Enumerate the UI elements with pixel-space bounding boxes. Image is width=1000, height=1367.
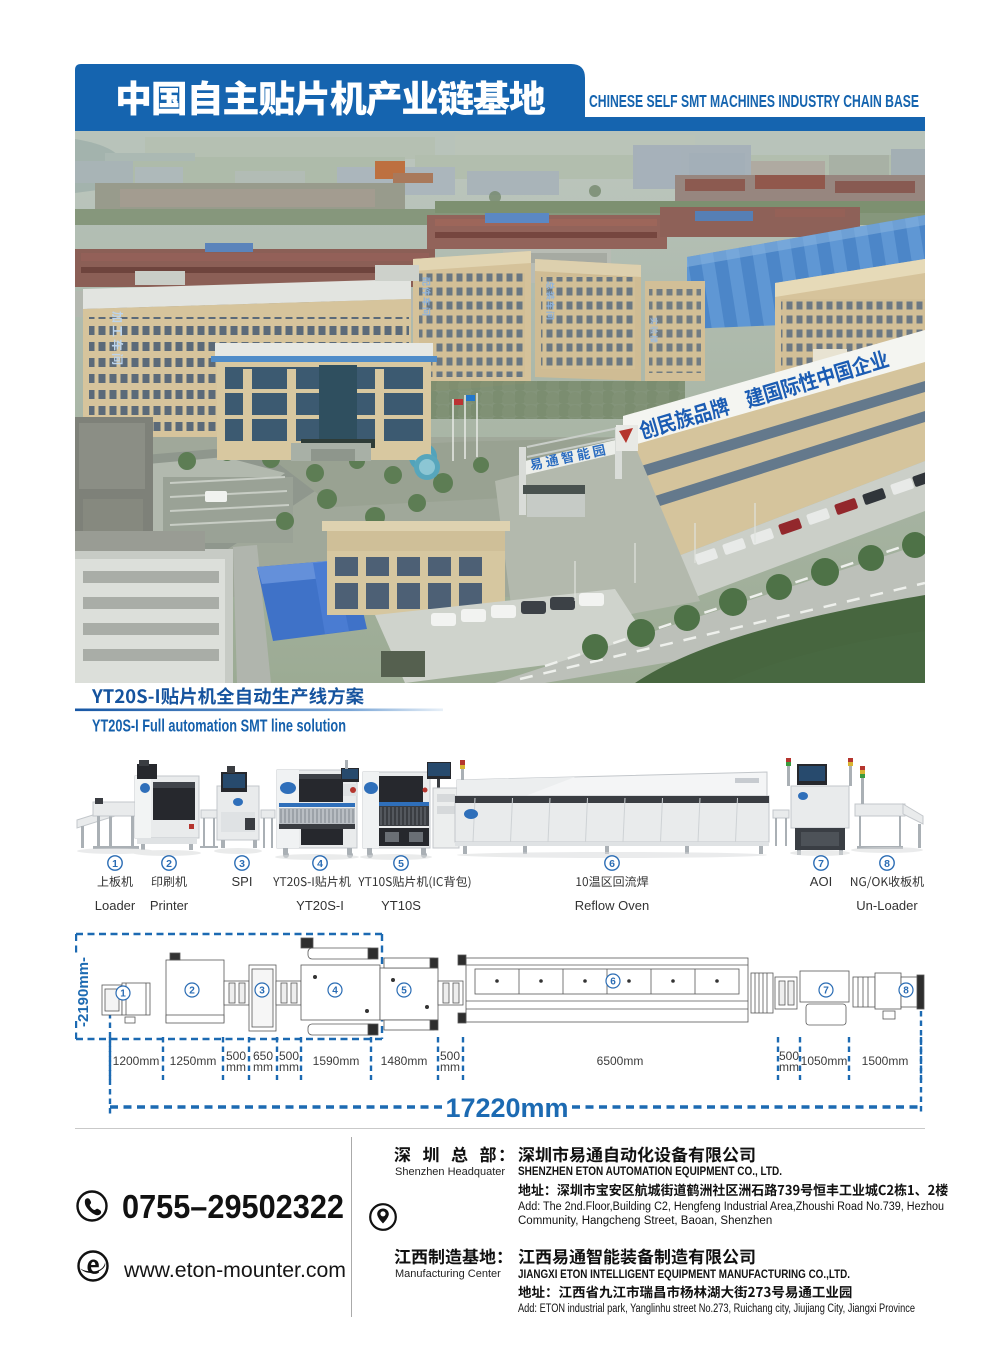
svg-text:2: 2 <box>166 858 172 870</box>
svg-text:Add: ETON industrial park, Yan: Add: ETON industrial park, Yanglinhu str… <box>518 1303 915 1315</box>
svg-text:1: 1 <box>112 858 118 870</box>
svg-text:Un-Loader: Un-Loader <box>856 898 918 913</box>
svg-text:1590mm: 1590mm <box>313 1054 360 1068</box>
svg-text:1500mm: 1500mm <box>862 1054 909 1068</box>
svg-text:1250mm: 1250mm <box>170 1054 217 1068</box>
svg-text:Reflow Oven: Reflow Oven <box>575 898 649 913</box>
svg-text:YT20S-I: YT20S-I <box>296 898 344 913</box>
svg-text:1050mm: 1050mm <box>801 1054 848 1068</box>
svg-text:6: 6 <box>609 858 615 870</box>
svg-text:mm: mm <box>253 1060 273 1074</box>
svg-text:2: 2 <box>189 986 195 997</box>
svg-text:0755–29502322: 0755–29502322 <box>122 1189 344 1226</box>
svg-text:YT10S: YT10S <box>381 898 421 913</box>
svg-text:3: 3 <box>239 858 245 870</box>
svg-text:17220mm: 17220mm <box>445 1093 568 1123</box>
svg-text:3: 3 <box>259 986 265 997</box>
svg-text:JIANGXI ETON INTELLIGENT EQUIP: JIANGXI ETON INTELLIGENT EQUIPMENT MANUF… <box>518 1269 850 1281</box>
svg-text:5: 5 <box>401 986 407 997</box>
svg-text:4: 4 <box>317 858 323 870</box>
svg-text:-2190mm-: -2190mm- <box>75 957 92 1027</box>
svg-text:Shenzhen Headquater: Shenzhen Headquater <box>395 1166 505 1178</box>
svg-text:8: 8 <box>903 986 909 997</box>
svg-text:AOI: AOI <box>810 874 832 889</box>
svg-text:6500mm: 6500mm <box>597 1054 644 1068</box>
svg-text:SPI: SPI <box>232 874 253 889</box>
svg-text:7: 7 <box>818 858 824 870</box>
svg-text:mm: mm <box>226 1060 246 1074</box>
svg-text:1200mm: 1200mm <box>113 1054 160 1068</box>
svg-text:1480mm: 1480mm <box>381 1054 428 1068</box>
svg-text:Manufacturing Center: Manufacturing Center <box>395 1268 501 1280</box>
svg-text:SHENZHEN ETON AUTOMATION EQUIP: SHENZHEN ETON AUTOMATION EQUIPMENT CO., … <box>518 1166 782 1178</box>
svg-text:Add: The 2nd.Floor,Building C2: Add: The 2nd.Floor,Building C2, Hengfeng… <box>518 1201 944 1213</box>
svg-text:mm: mm <box>440 1060 460 1074</box>
svg-text:www.eton-mounter.com: www.eton-mounter.com <box>123 1258 346 1282</box>
svg-text:mm: mm <box>779 1060 799 1074</box>
svg-text:CHINESE SELF SMT MACHINES INDU: CHINESE SELF SMT MACHINES INDUSTRY CHAIN… <box>589 91 919 111</box>
svg-text:Community, Hangcheng Street, B: Community, Hangcheng Street, Baoan, Shen… <box>518 1215 772 1227</box>
svg-text:4: 4 <box>332 986 338 997</box>
svg-text:mm: mm <box>279 1060 299 1074</box>
svg-text:Printer: Printer <box>150 898 189 913</box>
svg-text:6: 6 <box>610 977 616 988</box>
svg-text:5: 5 <box>398 858 404 870</box>
svg-text:YT20S-I Full automation SMT li: YT20S-I Full automation SMT line solutio… <box>92 716 346 736</box>
svg-text:7: 7 <box>823 986 829 997</box>
svg-text:1: 1 <box>120 989 126 1000</box>
svg-text:Loader: Loader <box>95 898 136 913</box>
svg-text:8: 8 <box>884 858 890 870</box>
